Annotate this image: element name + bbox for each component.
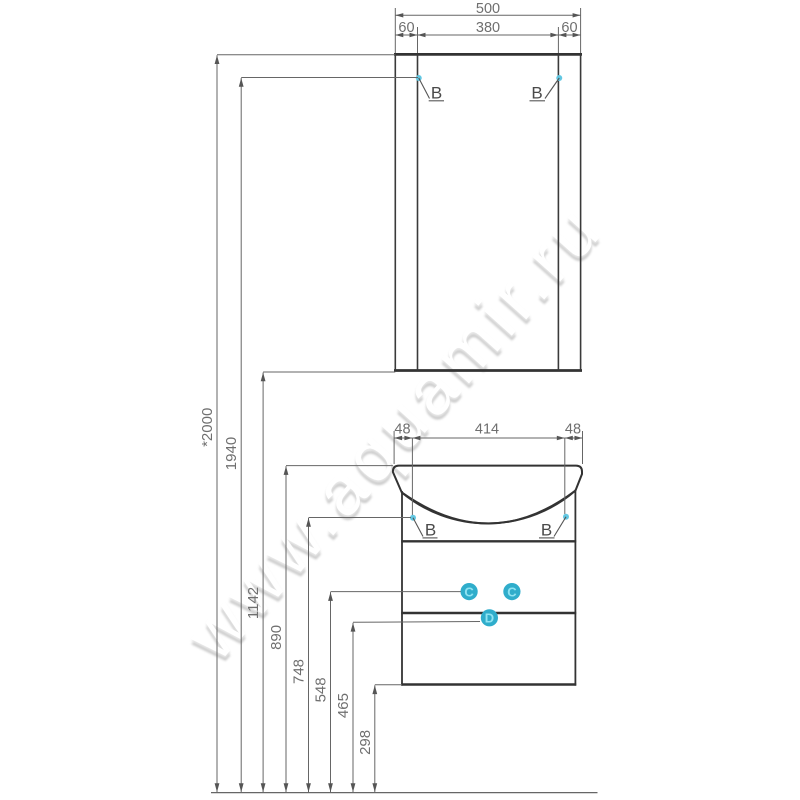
svg-text:380: 380 bbox=[476, 20, 500, 36]
svg-text:B: B bbox=[425, 521, 436, 540]
svg-text:48: 48 bbox=[565, 422, 581, 438]
svg-text:548: 548 bbox=[313, 677, 330, 702]
svg-text:748: 748 bbox=[291, 659, 308, 684]
svg-text:B: B bbox=[431, 84, 442, 103]
svg-text:60: 60 bbox=[398, 20, 414, 36]
svg-text:414: 414 bbox=[475, 422, 499, 438]
svg-text:B: B bbox=[531, 84, 542, 103]
svg-text:298: 298 bbox=[357, 730, 374, 755]
svg-text:890: 890 bbox=[268, 625, 285, 650]
svg-text:60: 60 bbox=[561, 20, 577, 36]
svg-text:48: 48 bbox=[394, 422, 410, 438]
svg-text:C: C bbox=[464, 584, 474, 599]
svg-text:465: 465 bbox=[335, 693, 352, 718]
svg-text:500: 500 bbox=[476, 1, 500, 17]
svg-text:C: C bbox=[507, 584, 517, 599]
svg-text:1142: 1142 bbox=[245, 587, 262, 619]
svg-text:D: D bbox=[485, 611, 494, 626]
svg-text:*2000: *2000 bbox=[199, 408, 216, 447]
svg-text:B: B bbox=[541, 521, 552, 540]
svg-text:1940: 1940 bbox=[223, 437, 240, 470]
